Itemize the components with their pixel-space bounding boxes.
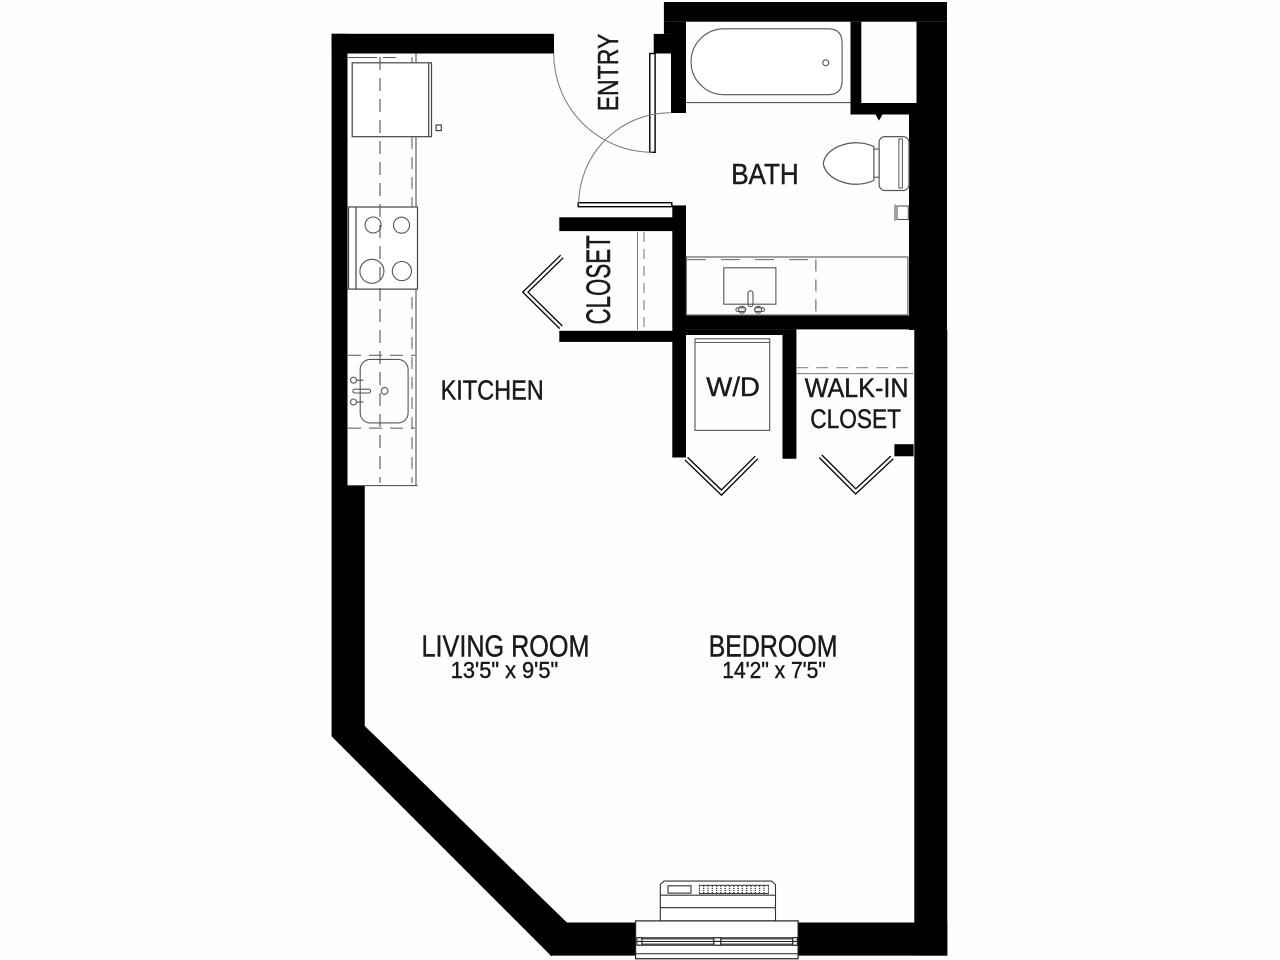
svg-text:ENTRY: ENTRY <box>593 34 625 112</box>
svg-text:14'2" x 7'5": 14'2" x 7'5" <box>722 657 826 683</box>
svg-text:13'5" x 9'5": 13'5" x 9'5" <box>451 657 558 683</box>
svg-text:WALK-IN: WALK-IN <box>805 373 909 403</box>
svg-text:W/D: W/D <box>706 372 760 402</box>
svg-text:CLOSET: CLOSET <box>580 235 618 324</box>
svg-text:CLOSET: CLOSET <box>810 404 901 434</box>
svg-text:BATH: BATH <box>731 159 799 191</box>
svg-text:KITCHEN: KITCHEN <box>441 373 544 405</box>
